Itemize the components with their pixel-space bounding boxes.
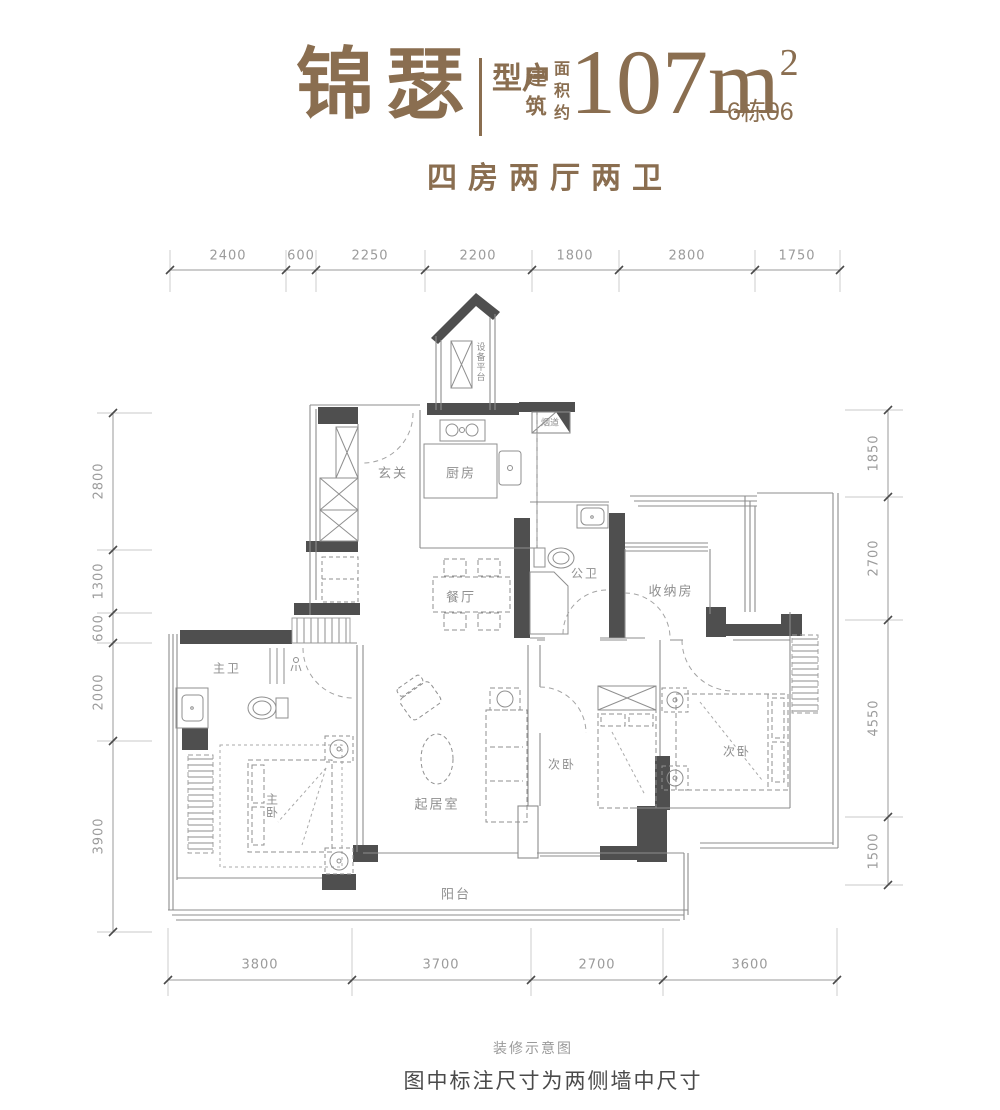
- master-bed-icon: [220, 745, 342, 867]
- room-label-dining: 餐厅: [446, 587, 476, 606]
- dim-right-3: 1500: [867, 832, 882, 869]
- dim-left-4: 3900: [92, 817, 107, 854]
- shower-area: [530, 572, 568, 634]
- master-bath-door-arc: [303, 648, 353, 698]
- caption-schematic: 装修示意图: [493, 1038, 573, 1058]
- dim-top-4: 1800: [556, 249, 593, 264]
- room-label-entry: 玄关: [378, 463, 408, 482]
- dim-right-2: 4550: [867, 699, 882, 736]
- armchair-icon: [393, 672, 443, 722]
- dim-top-3: 2200: [459, 249, 496, 264]
- stove-icon: [440, 420, 485, 441]
- rug-oval: [421, 734, 453, 784]
- left-bay-hatch: [188, 755, 213, 853]
- kitchen-sink-icon: [499, 451, 521, 485]
- entry-cabinet-icon: [320, 427, 358, 541]
- shower-screen: [270, 648, 284, 684]
- master-bath-toilet-icon: [248, 697, 288, 719]
- equipment-unit-icon: [451, 341, 472, 388]
- public-bath-door-arc: [563, 590, 607, 634]
- storage-door-arc: [625, 593, 670, 638]
- dim-left-0: 2800: [92, 462, 107, 499]
- dim-top-6: 1750: [778, 249, 815, 264]
- dim-left-2: 600: [92, 614, 107, 642]
- floorplan-page: 锦瑟 户型 建筑 面积约 107m2 6栋06 四房两厅两卫: [0, 0, 1000, 1110]
- dim-right-1: 2700: [867, 539, 882, 576]
- room-label-storage: 收纳房: [648, 581, 693, 600]
- room-label-master-bedroom: 主卧: [264, 793, 281, 819]
- room-label-balcony: 阳台: [441, 884, 471, 903]
- right-bay-hatch: [792, 635, 818, 713]
- room-label-living: 起居室: [414, 794, 459, 813]
- shoe-cabinet-hatch: [292, 618, 350, 643]
- dim-right-0: 1850: [867, 434, 882, 471]
- public-bath-toilet-icon: [534, 548, 574, 568]
- room-label-equipment-platform: 设备平台: [475, 342, 488, 382]
- public-bath-sink-icon: [577, 505, 608, 528]
- room-label-flue: 烟道: [541, 416, 559, 429]
- speaker-icon: [325, 736, 353, 874]
- dim-bottom-0: 3800: [241, 958, 278, 973]
- dim-bottom-3: 3600: [731, 958, 768, 973]
- dim-top-2: 2250: [351, 249, 388, 264]
- room-label-master-bath: 主卫: [213, 660, 241, 677]
- dim-left-3: 2000: [92, 673, 107, 710]
- master-bath-sink-icon: [176, 688, 208, 728]
- wardrobe-icon: [598, 686, 656, 710]
- room-label-bedroom-mid: 次卧: [548, 756, 576, 773]
- shower-head-icon: [291, 658, 301, 672]
- right-bedroom-door-arc: [682, 640, 733, 691]
- dim-bottom-1: 3700: [422, 958, 459, 973]
- room-label-kitchen: 厨房: [446, 463, 476, 482]
- mid-bed-icon: [598, 710, 656, 808]
- mid-bedroom-door-arc: [540, 687, 586, 733]
- room-label-bedroom-right: 次卧: [723, 743, 751, 760]
- caption-dimension-note: 图中标注尺寸为两侧墙中尺寸: [404, 1065, 703, 1095]
- dim-bottom-2: 2700: [578, 958, 615, 973]
- dim-left-1: 1300: [92, 562, 107, 599]
- dim-top-0: 2400: [209, 249, 246, 264]
- floor-plan-drawing: [0, 0, 1000, 1110]
- dim-top-1: 600: [287, 249, 315, 264]
- entry-door-arc: [363, 413, 413, 463]
- hatch-zones: [188, 618, 818, 853]
- dim-top-5: 2800: [668, 249, 705, 264]
- room-label-public-bath: 公卫: [571, 565, 599, 582]
- sofa-icon: [486, 688, 527, 822]
